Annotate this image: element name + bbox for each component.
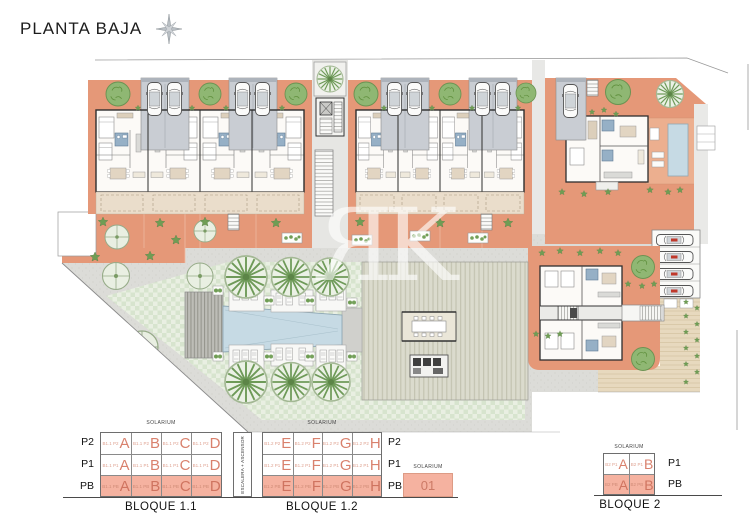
car-icon [657, 269, 694, 280]
garden-staircase [315, 150, 333, 216]
unit-cell: B2 PBB [629, 474, 654, 494]
solarium-label: SOLARIUM [403, 464, 453, 470]
unit-cell: B1.2 P1H [352, 454, 382, 475]
tree-icon [199, 83, 221, 105]
tree-icon [106, 82, 130, 106]
car-icon [494, 83, 511, 116]
bloque-2-name: BLOQUE 2 [592, 499, 668, 511]
floor-label-p1: P1 [668, 458, 696, 469]
palm-tree-icon [312, 363, 350, 401]
tree-icon [632, 256, 655, 279]
car-icon [657, 235, 694, 246]
unit-cell: B2 P1B [629, 454, 654, 474]
outdoor-kitchen [410, 355, 448, 377]
page-title: PLANTA BAJA [20, 19, 142, 39]
car-icon [166, 83, 183, 116]
unit-cell: B1.2 PBE [263, 475, 293, 496]
tree-icon [516, 83, 536, 103]
tree-icon [103, 263, 130, 290]
car-icon [146, 83, 163, 116]
palm-tree-icon [311, 258, 349, 296]
private-pool [668, 124, 688, 176]
palm-tree-icon [272, 258, 311, 297]
car-icon [657, 252, 694, 263]
palm-tree-icon [225, 361, 267, 403]
ground-line [63, 497, 458, 498]
bloque-2-key: B2 P1A B2 P1B B2 PBA B2 PBB [603, 453, 655, 495]
tree-icon [285, 83, 307, 105]
stair-core [312, 60, 348, 248]
palm-tree-icon [657, 81, 684, 108]
unit-cell: B1.2 P1G [322, 454, 352, 475]
unit-cell: B1.1 P1C [161, 454, 191, 475]
entry-stairs [640, 306, 662, 320]
palm-tree-icon [225, 256, 267, 298]
bloque-1-2-name: BLOQUE 1.2 [262, 501, 382, 513]
unit-cell: B1.1 P1D [191, 454, 221, 475]
unit-cell: B1.2 P1F [293, 454, 323, 475]
unit-cell: B1.1 PBD [191, 475, 221, 496]
car-icon [234, 83, 251, 116]
car-icon [406, 83, 423, 116]
palm-tree-icon [317, 66, 343, 92]
tree-icon [354, 82, 378, 106]
car-icon [657, 286, 694, 297]
compass-icon [152, 12, 186, 46]
annex-unit-key: 01 [403, 473, 453, 497]
unit-cell: B1.1 PBA [101, 475, 131, 496]
tree-icon [187, 263, 213, 289]
car-icon [386, 83, 403, 116]
palm-tree-icon [272, 363, 311, 402]
bloque-2-upper-plan [545, 78, 715, 244]
unit-cell: B1.2 PBF [293, 475, 323, 496]
floor-label-pb: PB [66, 481, 94, 492]
car-icon [562, 85, 579, 118]
plan-sheet: PLANTA BAJA [0, 0, 756, 528]
unit-cell: B2 P1A [604, 454, 629, 474]
unit-cell: B1.1 PBC [161, 475, 191, 496]
car-icon [254, 83, 271, 116]
floor-label-p1: P1 [66, 459, 94, 470]
site-plan [0, 0, 756, 445]
floor-label-pb: PB [388, 481, 416, 492]
floor-label-p1: P1 [388, 459, 416, 470]
tree-icon [439, 83, 461, 105]
pergola-dining [402, 312, 456, 341]
unit-cell: B1.2 P1E [263, 454, 293, 475]
bloque-1-1-name: BLOQUE 1.1 [100, 501, 222, 513]
unit-cell: B1.1 P1A [101, 454, 131, 475]
ground-line [594, 495, 722, 496]
unit-cell: B2 PBA [604, 474, 629, 494]
unit-cell: B1.2 PBG [322, 475, 352, 496]
floor-label-pb: PB [668, 479, 696, 490]
car-icon [474, 83, 491, 116]
tree-icon [606, 80, 631, 105]
unit-cell: B1.1 PBB [131, 475, 161, 496]
tree-icon [105, 225, 129, 249]
unit-cell: B1.1 P1B [131, 454, 161, 475]
tree-icon [632, 348, 655, 371]
unit-cell: B1.2 PBH [352, 475, 382, 496]
